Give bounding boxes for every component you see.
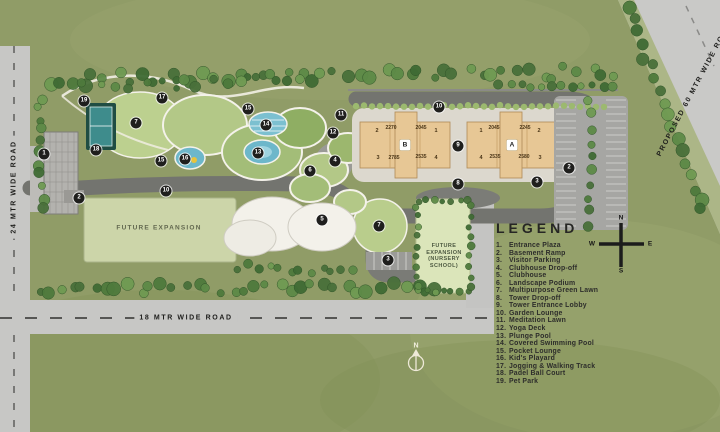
map-marker-3: 3 xyxy=(532,177,543,188)
map-marker-12: 12 xyxy=(328,128,339,139)
map-marker-10: 10 xyxy=(161,186,172,197)
map-marker-9: 9 xyxy=(453,141,464,152)
site-markers: 122334567789101011121314151516171819 xyxy=(0,0,720,432)
map-marker-2: 2 xyxy=(74,193,85,204)
map-marker-1: 1 xyxy=(39,149,50,160)
map-marker-17: 17 xyxy=(157,93,168,104)
map-marker-3: 3 xyxy=(383,255,394,266)
map-marker-14: 14 xyxy=(261,120,272,131)
map-marker-4: 4 xyxy=(330,156,341,167)
map-marker-7: 7 xyxy=(374,221,385,232)
map-marker-2: 2 xyxy=(564,163,575,174)
map-marker-16: 16 xyxy=(180,154,191,165)
map-marker-15: 15 xyxy=(156,156,167,167)
map-marker-11: 11 xyxy=(336,110,347,121)
site-plan-canvas: 24 MTR WIDE ROAD 18 MTR WIDE ROAD PROPOS… xyxy=(0,0,720,432)
map-marker-6: 6 xyxy=(305,166,316,177)
map-marker-7: 7 xyxy=(131,118,142,129)
map-marker-18: 18 xyxy=(91,145,102,156)
map-marker-5: 5 xyxy=(317,215,328,226)
map-marker-10: 10 xyxy=(434,102,445,113)
map-marker-15: 15 xyxy=(243,104,254,115)
map-marker-13: 13 xyxy=(253,148,264,159)
map-marker-19: 19 xyxy=(79,96,90,107)
map-marker-8: 8 xyxy=(453,179,464,190)
